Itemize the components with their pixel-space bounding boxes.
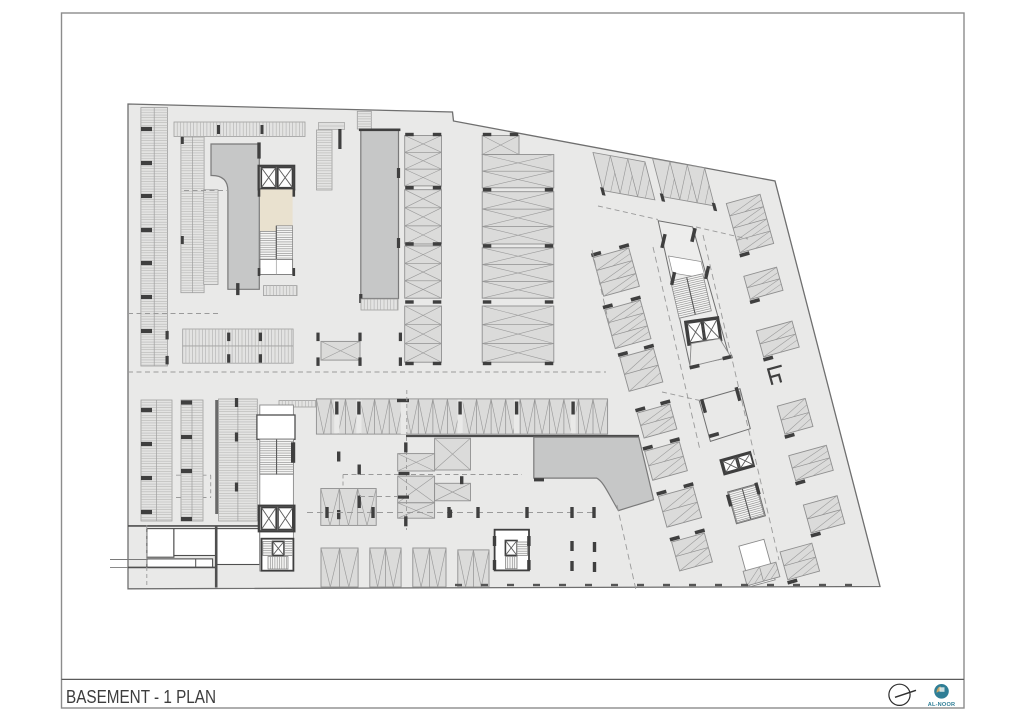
svg-text:BASEMENT - 1 PLAN: BASEMENT - 1 PLAN <box>66 686 216 707</box>
svg-text:AL-NOOR: AL-NOOR <box>928 702 956 708</box>
